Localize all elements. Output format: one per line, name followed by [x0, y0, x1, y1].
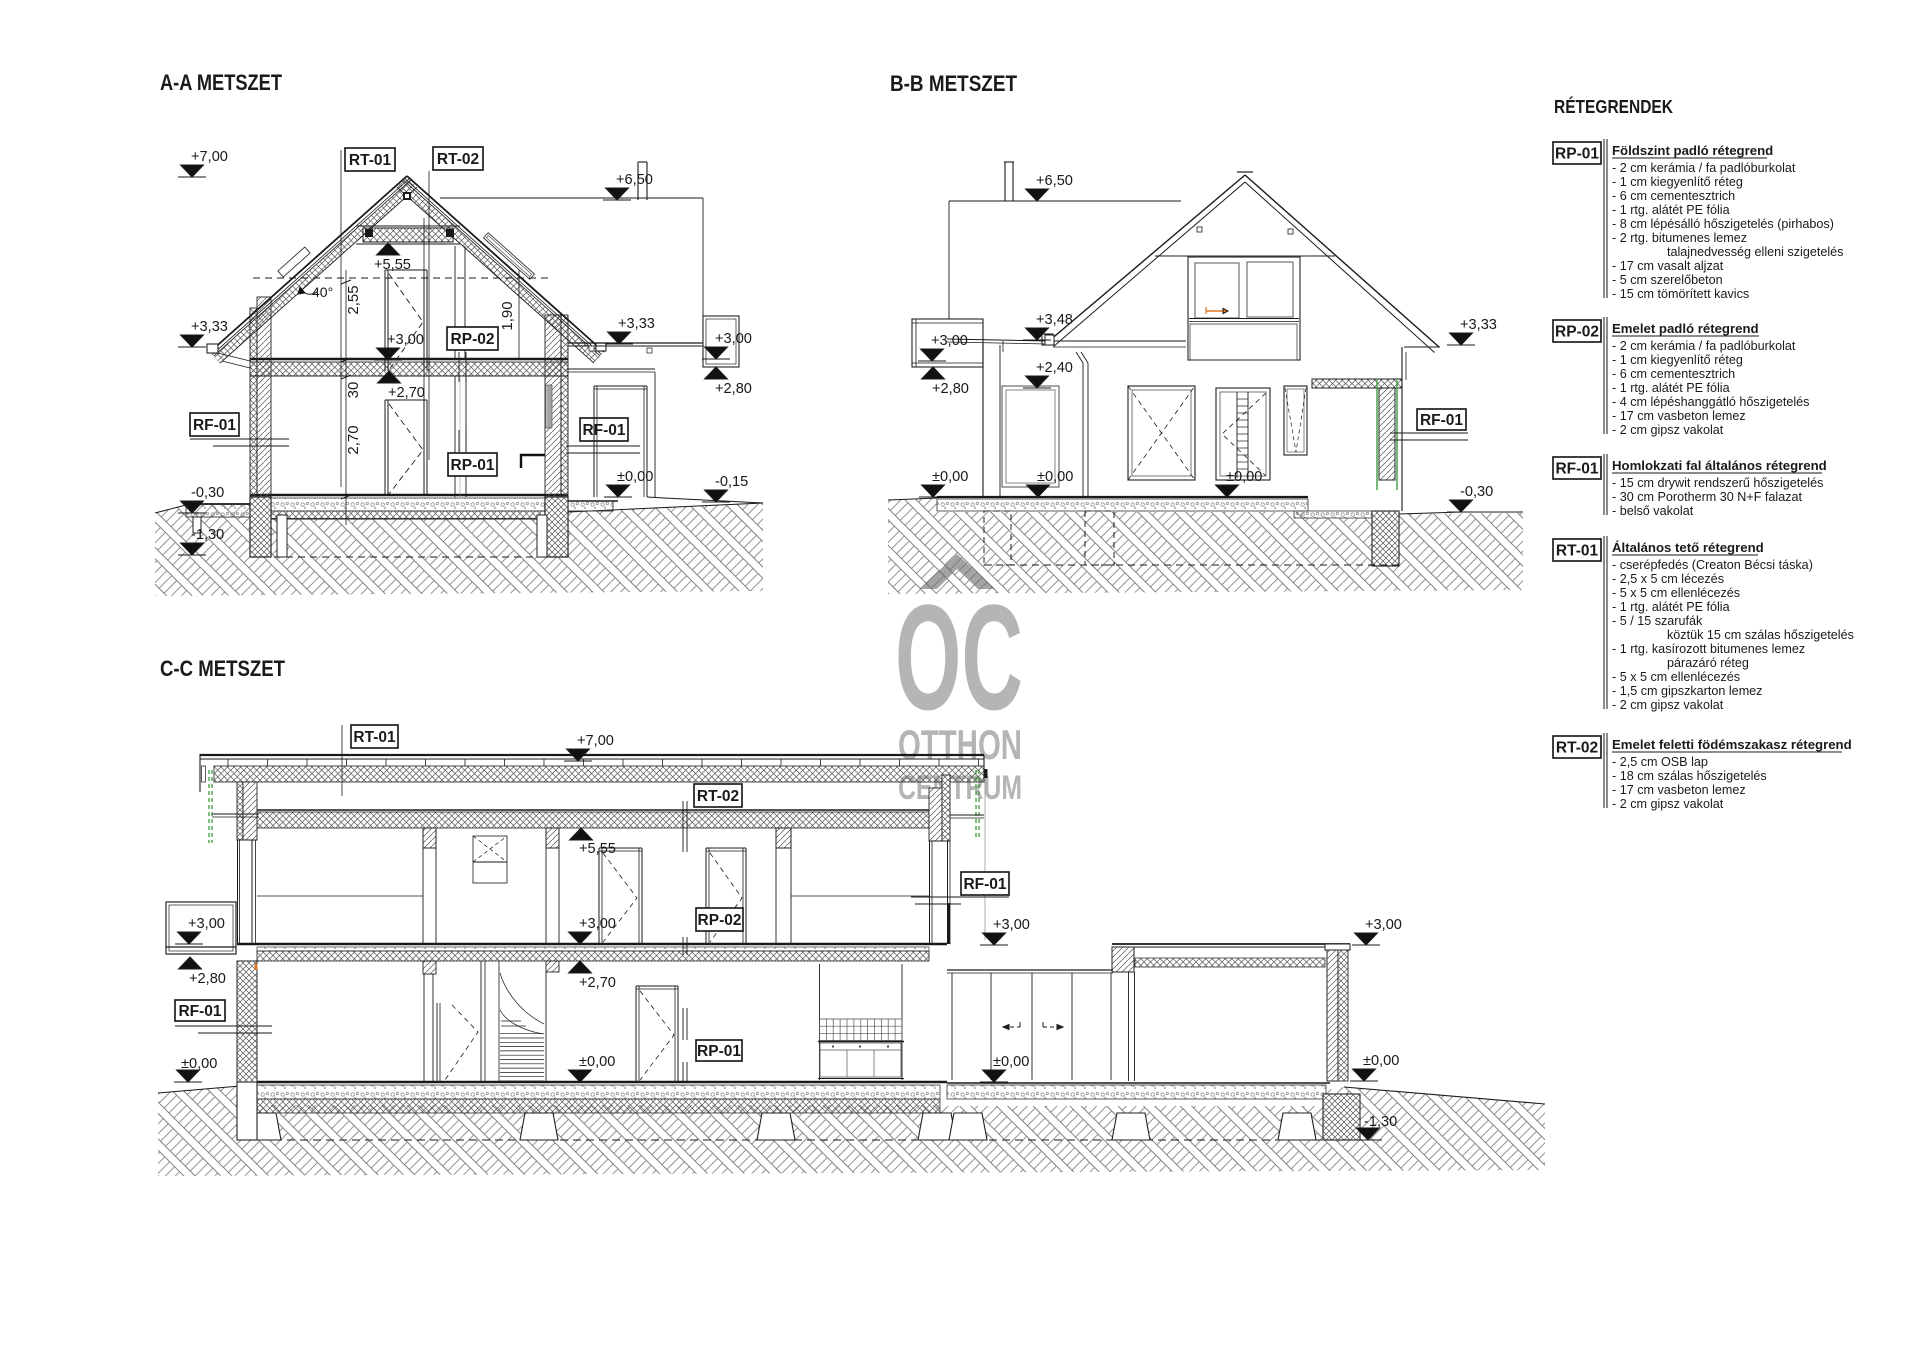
- svg-text:RF-01: RF-01: [193, 417, 236, 434]
- svg-text:RT-01: RT-01: [1556, 543, 1599, 560]
- svg-text:RT-02: RT-02: [697, 788, 739, 805]
- svg-text:-0,15: -0,15: [715, 474, 748, 490]
- svg-text:±0,00: ±0,00: [1226, 469, 1262, 485]
- svg-text:- 2,5 x 5 cm lécezés: - 2,5 x 5 cm lécezés: [1612, 572, 1724, 586]
- svg-text:- 1 cm kiegyenlítő réteg: - 1 cm kiegyenlítő réteg: [1612, 353, 1743, 367]
- svg-text:+2,80: +2,80: [715, 381, 752, 397]
- svg-text:±0,00: ±0,00: [617, 469, 653, 485]
- svg-text:RP-02: RP-02: [698, 912, 742, 929]
- svg-text:RT-02: RT-02: [1556, 740, 1598, 757]
- svg-text:±0,00: ±0,00: [932, 469, 968, 485]
- svg-text:+7,00: +7,00: [577, 733, 614, 749]
- svg-text:- 1 rtg. kasírozott bitumenes: - 1 rtg. kasírozott bitumenes lemez: [1612, 642, 1805, 656]
- svg-text:+3,00: +3,00: [579, 916, 616, 932]
- svg-text:+3,00: +3,00: [1365, 917, 1402, 933]
- svg-text:Földszint padló rétegrend: Földszint padló rétegrend: [1612, 143, 1773, 158]
- svg-text:OC: OC: [895, 573, 1023, 741]
- svg-text:+2,70: +2,70: [579, 975, 616, 991]
- svg-text:párazáró réteg: párazáró réteg: [1667, 656, 1749, 670]
- svg-text:- 1 cm kiegyenlítő réteg: - 1 cm kiegyenlítő réteg: [1612, 175, 1743, 189]
- svg-text:+3,33: +3,33: [1460, 317, 1497, 333]
- svg-text:- 5 x 5 cm ellenlécezés: - 5 x 5 cm ellenlécezés: [1612, 586, 1740, 600]
- svg-text:RÉTEGRENDEK: RÉTEGRENDEK: [1554, 96, 1674, 117]
- svg-text:RF-01: RF-01: [582, 422, 625, 439]
- svg-text:- 2 cm gipsz vakolat: - 2 cm gipsz vakolat: [1612, 797, 1724, 811]
- svg-text:RF-01: RF-01: [178, 1003, 221, 1020]
- svg-text:RT-02: RT-02: [437, 151, 479, 168]
- svg-text:- 2,5 cm OSB lap: - 2,5 cm OSB lap: [1612, 755, 1708, 769]
- svg-text:RT-01: RT-01: [353, 729, 396, 746]
- svg-text:-1,30: -1,30: [1364, 1114, 1397, 1130]
- svg-text:A-A METSZET: A-A METSZET: [160, 70, 282, 95]
- svg-text:Általános tető rétegrend: Általános tető rétegrend: [1612, 540, 1764, 555]
- svg-text:OTTHON: OTTHON: [898, 721, 1022, 768]
- svg-text:2,55: 2,55: [345, 285, 362, 314]
- svg-text:RF-01: RF-01: [1420, 412, 1463, 429]
- svg-text:+5,55: +5,55: [374, 257, 411, 273]
- svg-text:RF-01: RF-01: [963, 876, 1006, 893]
- svg-text:- 2 cm kerámia / fa padlóburko: - 2 cm kerámia / fa padlóburkolat: [1612, 339, 1796, 353]
- svg-text:+7,00: +7,00: [191, 149, 228, 165]
- svg-text:- 6 cm cementesztrich: - 6 cm cementesztrich: [1612, 367, 1735, 381]
- svg-text:- 17 cm vasbeton lemez: - 17 cm vasbeton lemez: [1612, 783, 1746, 797]
- svg-text:- 2 rtg. bitumenes lemez: - 2 rtg. bitumenes lemez: [1612, 231, 1747, 245]
- svg-text:- 2 cm gipsz vakolat: - 2 cm gipsz vakolat: [1612, 698, 1724, 712]
- svg-text:- 8 cm lépésálló hőszigetelés: - 8 cm lépésálló hőszigetelés (pirhabos): [1612, 217, 1834, 231]
- svg-text:- 2 cm gipsz vakolat: - 2 cm gipsz vakolat: [1612, 423, 1724, 437]
- svg-text:+2,40: +2,40: [1036, 360, 1073, 376]
- svg-text:2,70: 2,70: [345, 425, 362, 454]
- svg-text:+2,80: +2,80: [189, 971, 226, 987]
- svg-text:C-C METSZET: C-C METSZET: [160, 656, 285, 681]
- svg-text:RP-01: RP-01: [1555, 146, 1599, 163]
- svg-text:- 2 cm kerámia / fa padlóburko: - 2 cm kerámia / fa padlóburkolat: [1612, 161, 1796, 175]
- svg-text:±0,00: ±0,00: [993, 1054, 1029, 1070]
- svg-text:±0,00: ±0,00: [181, 1056, 217, 1072]
- svg-text:+3,33: +3,33: [618, 316, 655, 332]
- svg-text:- 6 cm cementesztrich: - 6 cm cementesztrich: [1612, 189, 1735, 203]
- svg-text:+3,33: +3,33: [191, 319, 228, 335]
- svg-text:+3,00: +3,00: [715, 331, 752, 347]
- svg-text:- 4 cm lépéshanggátló hősziget: - 4 cm lépéshanggátló hőszigetelés: [1612, 395, 1809, 409]
- svg-text:+3,00: +3,00: [993, 917, 1030, 933]
- svg-text:+3,00: +3,00: [188, 916, 225, 932]
- svg-text:- 1 rtg. alátét PE fólia: - 1 rtg. alátét PE fólia: [1612, 600, 1730, 614]
- svg-text:- 1,5 cm gipszkarton lemez: - 1,5 cm gipszkarton lemez: [1612, 684, 1762, 698]
- svg-text:RP-01: RP-01: [451, 457, 495, 474]
- svg-text:RP-02: RP-02: [1555, 324, 1599, 341]
- svg-text:30: 30: [345, 382, 362, 399]
- svg-text:RT-01: RT-01: [349, 152, 392, 169]
- svg-text:- 17 cm vasalt aljzat: - 17 cm vasalt aljzat: [1612, 259, 1724, 273]
- svg-text:- 30 cm Porotherm 30 N+F falaz: - 30 cm Porotherm 30 N+F falazat: [1612, 490, 1803, 504]
- svg-text:+6,50: +6,50: [1036, 173, 1073, 189]
- svg-text:+6,50: +6,50: [616, 172, 653, 188]
- svg-text:köztük 15 cm szálas hőszigetel: köztük 15 cm szálas hőszigetelés: [1667, 628, 1854, 642]
- svg-text:1,90: 1,90: [499, 301, 516, 330]
- svg-text:+2,80: +2,80: [932, 381, 969, 397]
- svg-text:40°: 40°: [312, 284, 333, 300]
- svg-text:+3,48: +3,48: [1036, 312, 1073, 328]
- svg-text:- 5 / 15 szarufák: - 5 / 15 szarufák: [1612, 614, 1703, 628]
- svg-text:- 15 cm tömörített kavics: - 15 cm tömörített kavics: [1612, 287, 1749, 301]
- svg-text:talajnedvesség elleni szigetel: talajnedvesség elleni szigetelés: [1667, 245, 1843, 259]
- svg-text:- 17 cm vasbeton lemez: - 17 cm vasbeton lemez: [1612, 409, 1746, 423]
- svg-text:B-B METSZET: B-B METSZET: [890, 71, 1017, 96]
- svg-text:- belső vakolat: - belső vakolat: [1612, 504, 1694, 518]
- svg-text:+5,55: +5,55: [579, 841, 616, 857]
- svg-text:±0,00: ±0,00: [1037, 469, 1073, 485]
- svg-text:+3,00: +3,00: [387, 332, 424, 348]
- svg-text:RF-01: RF-01: [1555, 461, 1598, 478]
- svg-text:Emelet padló rétegrend: Emelet padló rétegrend: [1612, 321, 1759, 336]
- svg-text:- 1 rtg. alátét PE fólia: - 1 rtg. alátét PE fólia: [1612, 203, 1730, 217]
- svg-text:- 15 cm drywit rendszerű hőszi: - 15 cm drywit rendszerű hőszigetelés: [1612, 476, 1823, 490]
- svg-text:±0,00: ±0,00: [579, 1054, 615, 1070]
- svg-text:±0,00: ±0,00: [1363, 1053, 1399, 1069]
- svg-text:- cserépfedés (Creaton Bécsi t: - cserépfedés (Creaton Bécsi táska): [1612, 558, 1813, 572]
- svg-text:-0,30: -0,30: [191, 485, 224, 501]
- svg-text:RP-01: RP-01: [697, 1043, 741, 1060]
- svg-text:- 1 rtg. alátét PE fólia: - 1 rtg. alátét PE fólia: [1612, 381, 1730, 395]
- svg-text:Homlokzati fal általános réteg: Homlokzati fal általános rétegrend: [1612, 458, 1827, 473]
- svg-text:+3,00: +3,00: [931, 333, 968, 349]
- svg-text:-1,30: -1,30: [191, 527, 224, 543]
- svg-text:- 18 cm szálas hőszigetelés: - 18 cm szálas hőszigetelés: [1612, 769, 1767, 783]
- svg-text:+2,70: +2,70: [388, 385, 425, 401]
- svg-text:- 5 cm szerelőbeton: - 5 cm szerelőbeton: [1612, 273, 1723, 287]
- svg-text:Emelet feletti födémszakasz ré: Emelet feletti födémszakasz rétegrend: [1612, 737, 1852, 752]
- svg-text:RP-02: RP-02: [451, 331, 495, 348]
- svg-text:- 5 x 5 cm ellenlécezés: - 5 x 5 cm ellenlécezés: [1612, 670, 1740, 684]
- svg-text:-0,30: -0,30: [1460, 484, 1493, 500]
